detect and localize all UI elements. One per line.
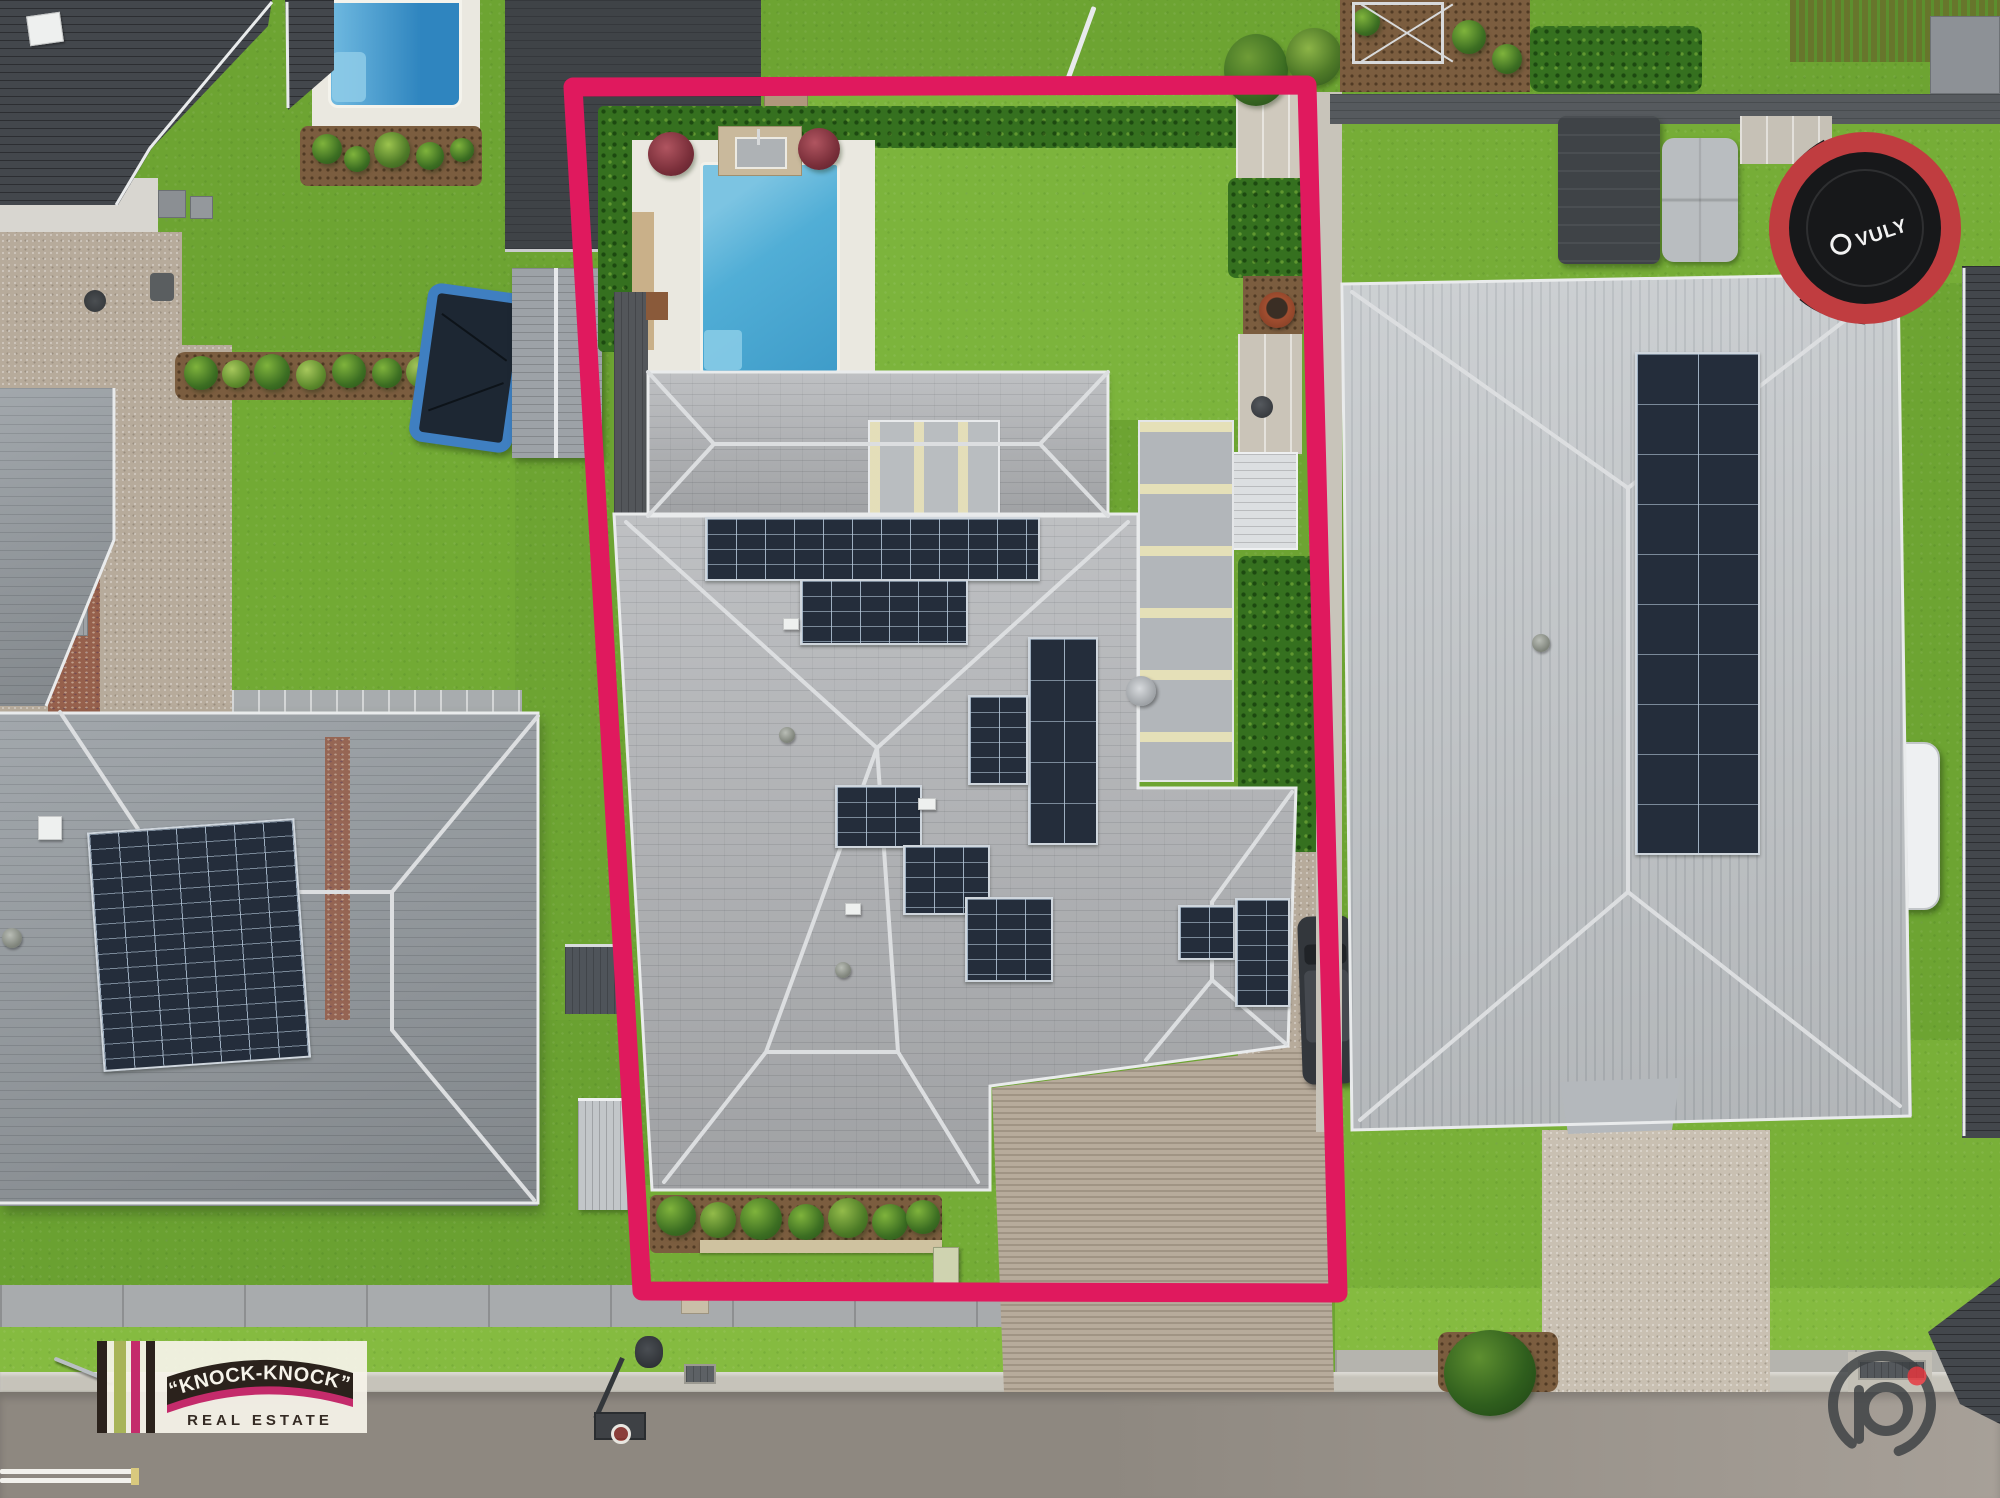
shrub (254, 354, 290, 390)
clothes-prop-pole (1060, 6, 1096, 94)
solar-array-left-house (87, 818, 311, 1072)
logo-stripe-olive (114, 1341, 126, 1433)
garden-pot (1251, 396, 1273, 418)
side-lean-to-roof (1230, 452, 1298, 550)
watermark-outer-ring (1813, 1338, 1951, 1474)
spa-rail (757, 129, 760, 145)
left-table (84, 290, 106, 312)
garden-plant (1452, 20, 1486, 54)
side-passage-dark (614, 292, 648, 514)
solar-array-right-tall (1028, 637, 1098, 845)
logo-stripe-black (97, 1341, 107, 1433)
basketball-ring (611, 1424, 631, 1444)
red-cordyline (648, 132, 694, 176)
palm-bush (374, 132, 410, 168)
side-awning (1138, 420, 1234, 782)
watermark-p-bowl (1864, 1387, 1908, 1431)
logo-stripe-black-2 (146, 1341, 155, 1433)
shrub (296, 360, 326, 390)
shrub (312, 134, 342, 164)
roof-vent-box (845, 903, 861, 915)
spa-inner (735, 137, 787, 169)
pool-steps (704, 330, 742, 370)
road-line-1 (0, 1469, 136, 1474)
rear-gray-shed (1930, 16, 2000, 94)
satellite-dish (1126, 676, 1156, 706)
logo-stripe-magenta (131, 1341, 140, 1433)
watermark-red-dot (1908, 1367, 1927, 1386)
fire-pit-bowl (1259, 292, 1295, 328)
front-hedge-bush (788, 1204, 824, 1240)
rust-garden-bed (646, 292, 668, 320)
logo-sub-text: REAL ESTATE (187, 1412, 333, 1429)
shrub (222, 360, 250, 388)
far-right-roof-strip (1962, 266, 2000, 1138)
red-cordyline (798, 128, 840, 170)
front-hedge-bush (906, 1200, 940, 1234)
vuly-trampoline: VULY (1765, 128, 1965, 328)
rear-bushes-right (1530, 26, 1702, 92)
shrub (416, 142, 444, 170)
ac-unit-2 (190, 196, 213, 219)
front-hedge-bush (740, 1198, 782, 1240)
solar-array-garage-b (1235, 898, 1290, 1007)
roof-vent (2, 928, 22, 948)
back-fence-right (1330, 94, 2000, 124)
roof-vent (779, 727, 795, 743)
solar-array-right-house (1635, 352, 1760, 855)
trampoline-strap (441, 313, 507, 362)
roof-vent (1532, 634, 1550, 652)
letterbox (933, 1247, 959, 1289)
boundary-path-strip (1316, 92, 1342, 1132)
utility-pad (681, 1296, 709, 1314)
basketball-hoop-base (635, 1336, 663, 1368)
roof-vent-box (918, 798, 936, 810)
spa-water-feature (718, 126, 802, 176)
palm-plant (1286, 28, 1342, 86)
solar-array-right-wing (968, 695, 1028, 785)
shrub (372, 358, 402, 388)
round-tree (1224, 34, 1288, 106)
roof-skylight-left (38, 816, 62, 840)
shrub (184, 356, 218, 390)
front-hedge-bush (872, 1204, 908, 1240)
road-line-2 (0, 1478, 136, 1483)
spa-cover (1662, 138, 1738, 262)
driveway (990, 1040, 1336, 1392)
right-driveway (1542, 1130, 1770, 1392)
left-rear-shed (565, 944, 631, 1014)
roof-vent-box (783, 618, 799, 630)
dark-spa-shed (1558, 116, 1660, 264)
garden-plant (1492, 44, 1522, 74)
trampoline-strap (428, 382, 504, 411)
ac-unit-1 (158, 190, 186, 218)
photographer-watermark (1812, 1338, 1952, 1478)
skylight (26, 12, 64, 46)
street-tree (1444, 1330, 1536, 1416)
right-house-roof (1342, 274, 1912, 1132)
road-line-cap (131, 1468, 139, 1485)
solar-array-main-top-2 (800, 579, 968, 645)
side-pavers-2 (1238, 334, 1302, 454)
footpath-left (0, 1285, 1005, 1327)
front-hedge-bush (700, 1202, 736, 1238)
back-right-pavers (1236, 92, 1314, 184)
left-carport (578, 1098, 638, 1210)
shrub (450, 138, 474, 162)
front-hedge-bush (828, 1198, 868, 1238)
roof-vent (835, 962, 851, 978)
front-retaining-wall (700, 1240, 942, 1253)
left-house-brick-strip (325, 737, 350, 1020)
right-house-porch (1560, 1078, 1680, 1134)
solar-array-mid (835, 785, 922, 848)
left-bin (150, 273, 174, 301)
solar-array-main-top (705, 517, 1040, 581)
gutter-drain-left (684, 1364, 716, 1384)
aerial-photo-scene: VULY “KNOCK-KNOCK” REAL ESTATE (0, 0, 2000, 1498)
shed-ridge (554, 268, 558, 458)
solar-array-garage-a (1178, 905, 1235, 960)
solar-array-bottom (965, 897, 1053, 982)
side-garden-hedge (1228, 178, 1316, 278)
left-garden-shed (512, 268, 602, 458)
upper-awning (868, 420, 1000, 516)
clothesline (1352, 2, 1444, 64)
shrub (332, 354, 366, 388)
paver-edge-row (232, 690, 522, 714)
left-pool-steps (332, 52, 366, 102)
shrub (344, 146, 370, 172)
front-hedge-bush (656, 1196, 696, 1236)
agency-logo: “KNOCK-KNOCK” REAL ESTATE (97, 1341, 367, 1433)
